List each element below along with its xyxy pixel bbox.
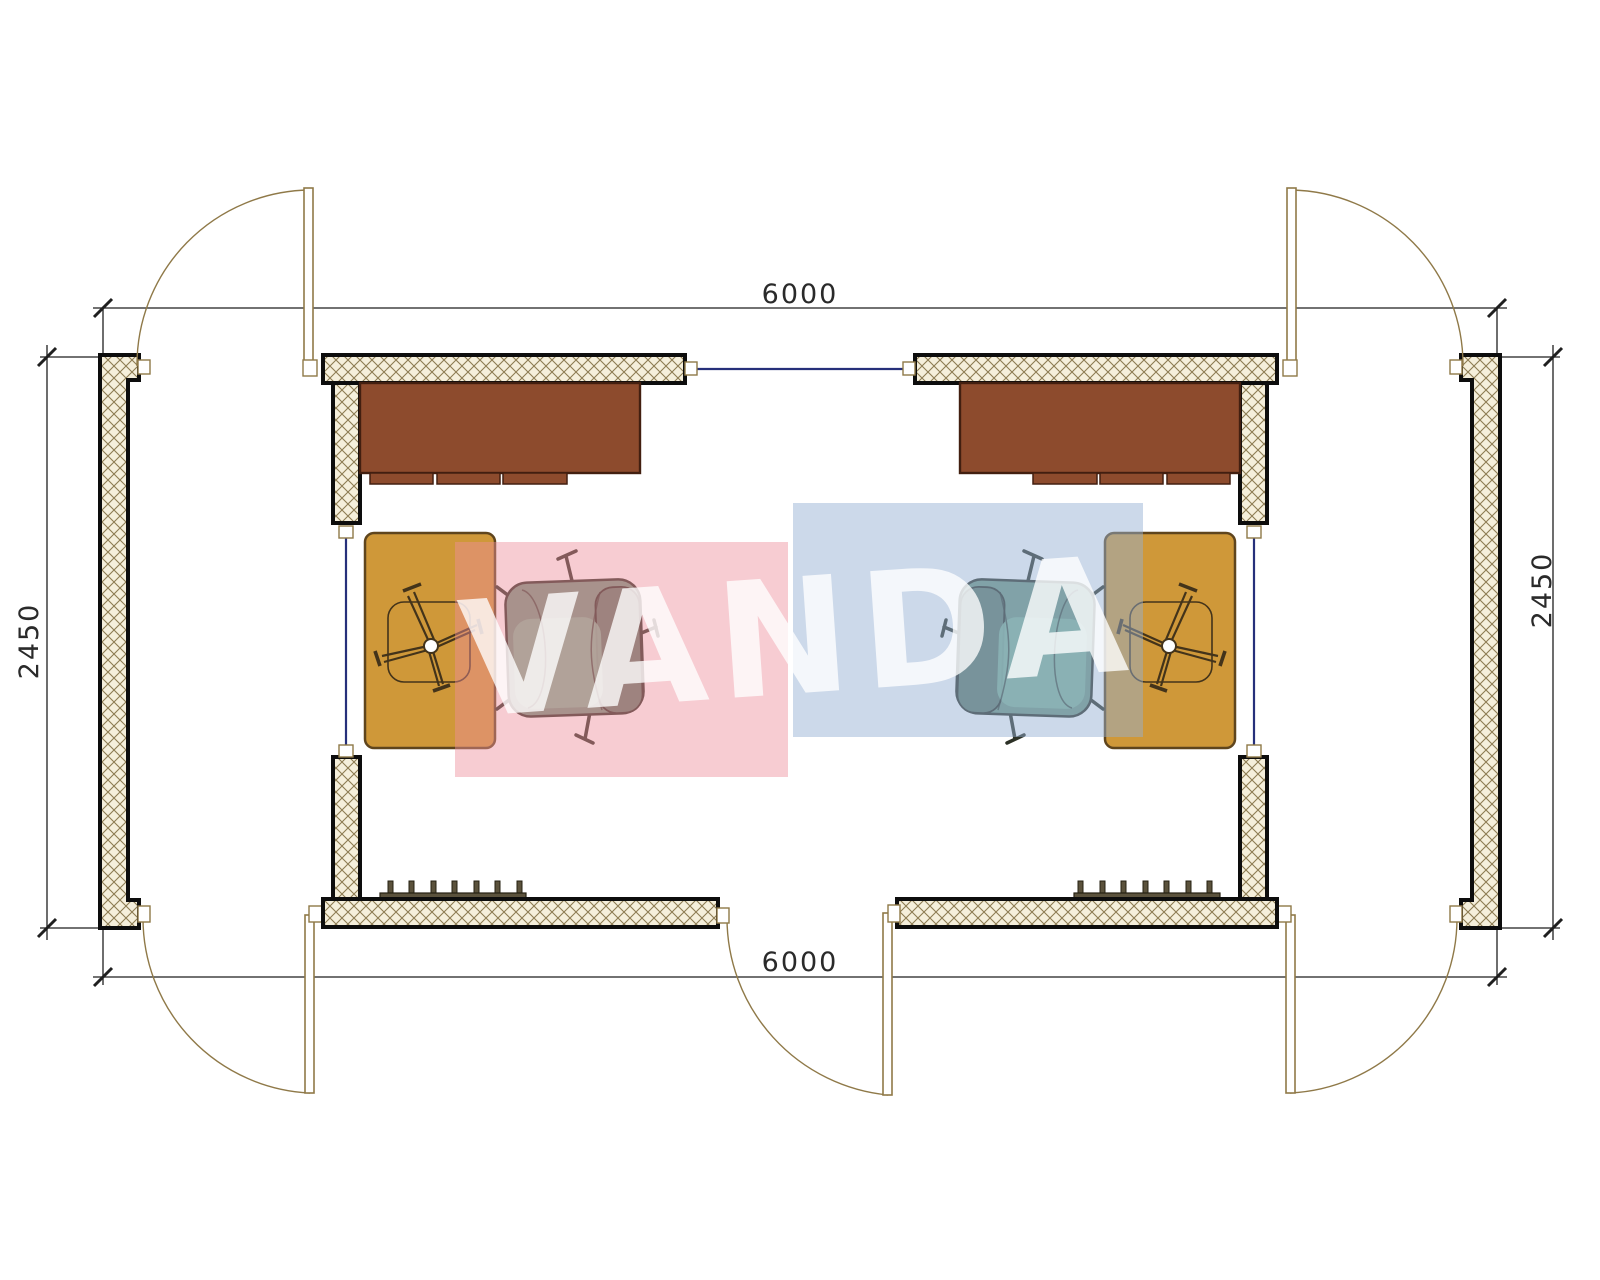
drawing-sheet: 6000 6000 2450 2450 [0,0,1600,1280]
door-leaf [883,913,892,1095]
watermark-block-pink [455,542,788,777]
dim-label-left: 2450 [14,603,45,680]
door-back-center [717,905,900,1095]
dimension-left: 2450 [14,345,102,940]
back-wall-left [323,899,718,927]
dim-label-bottom: 6000 [762,947,839,978]
dim-label-right: 2450 [1527,552,1558,629]
door-jamb [888,905,900,922]
door-swing-arc [727,917,888,1095]
floor-plan: 6000 6000 2450 2450 [0,0,1600,1280]
door-jamb [717,908,729,923]
dimension-right: 2450 [1498,345,1562,940]
watermark-block-blue [793,503,1143,737]
front-window [685,362,915,375]
dim-label-top: 6000 [762,279,839,310]
back-wall-right [897,899,1277,927]
